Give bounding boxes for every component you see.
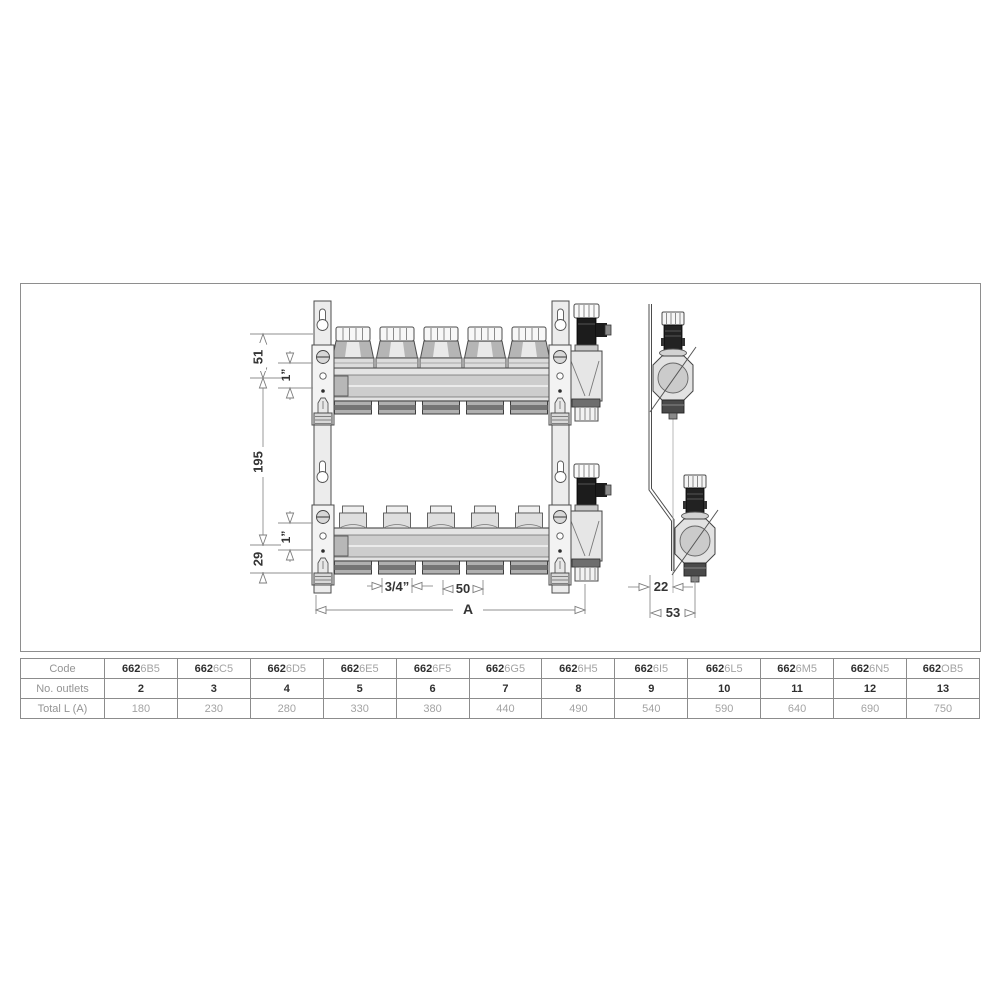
code-cell: 6626B5 [105,659,178,679]
total-cell: 640 [761,699,834,719]
outlets-cell: 13 [906,679,979,699]
code-cell: 662OB5 [906,659,979,679]
valve-knob [332,327,374,368]
outlets-cell: 10 [688,679,761,699]
dim-3-4inch-label: 3/4” [385,579,410,594]
dim-51-label: 51 [251,350,266,364]
valve-knob [508,327,550,368]
code-cell: 6626M5 [761,659,834,679]
total-cell: 590 [688,699,761,719]
bracket-plate [312,505,334,585]
outlets-cell: 8 [542,679,615,699]
side-valve-bottom [675,475,715,582]
manifold-drawing: 51 195 29 1” 1” 3/4” 50 [21,284,980,651]
total-cell: 750 [906,699,979,719]
table-row-total-length: Total L (A) 180 230 280 330 380 440 490 … [21,699,980,719]
row-label-code: Code [21,659,105,679]
end-valve-assembly-top [568,304,611,421]
total-cell: 490 [542,699,615,719]
bracket-plate [549,505,571,585]
side-view [649,304,718,593]
outlets-cell: 3 [177,679,250,699]
inlet-stub [472,506,499,528]
inlet-stub [516,506,543,528]
product-code-table: Code 6626B5 6626C5 6626D5 6626E5 6626F5 … [20,658,980,719]
inlet-stub [428,506,455,528]
total-cell: 440 [469,699,542,719]
outlets-cell: 12 [834,679,907,699]
dim-50-label: 50 [456,581,470,596]
dim-29-label: 29 [251,552,266,566]
outlet-nut [511,401,548,414]
outlet-nut [467,561,504,574]
technical-drawing-panel: 51 195 29 1” 1” 3/4” 50 [20,283,981,652]
end-valve-assembly-bottom [568,464,611,581]
bracket-plate [549,345,571,425]
outlets-cell: 11 [761,679,834,699]
row-label-outlets: No. outlets [21,679,105,699]
outlet-nut [423,401,460,414]
code-cell: 6626C5 [177,659,250,679]
total-cell: 690 [834,699,907,719]
code-cell: 6626D5 [250,659,323,679]
outlet-nut [335,561,372,574]
outlets-cell: 9 [615,679,688,699]
code-cell: 6626F5 [396,659,469,679]
front-view [312,301,611,593]
total-cell: 230 [177,699,250,719]
total-cell: 280 [250,699,323,719]
outlets-cell: 6 [396,679,469,699]
outlets-cell: 4 [250,679,323,699]
outlets-cell: 5 [323,679,396,699]
total-cell: 380 [396,699,469,719]
total-cell: 330 [323,699,396,719]
valve-knob [464,327,506,368]
bracket-plate [312,345,334,425]
valve-knob [376,327,418,368]
outlet-nut [379,401,416,414]
code-cell: 6626G5 [469,659,542,679]
outlet-nut [423,561,460,574]
outlet-nut [467,401,504,414]
outlet-nut [379,561,416,574]
row-label-total: Total L (A) [21,699,105,719]
code-cell: 6626H5 [542,659,615,679]
valve-knob [420,327,462,368]
code-cell: 6626E5 [323,659,396,679]
dim-1inch-top-label: 1” [279,369,293,382]
code-cell: 6626N5 [834,659,907,679]
code-cell: 6626L5 [688,659,761,679]
outlet-nut [335,401,372,414]
side-valve-top [653,312,693,419]
code-cell: 6626I5 [615,659,688,679]
dim-22-label: 22 [654,579,668,594]
outlets-cell: 7 [469,679,542,699]
outlet-nut [511,561,548,574]
total-cell: 540 [615,699,688,719]
table-row-outlets: No. outlets 2 3 4 5 6 7 8 9 10 11 12 13 [21,679,980,699]
dim-195-label: 195 [251,451,266,473]
outlets-cell: 2 [105,679,178,699]
dim-1inch-bottom-label: 1” [279,531,293,544]
inlet-stub [384,506,411,528]
inlet-stub [340,506,367,528]
dim-A-label: A [463,601,473,617]
total-cell: 180 [105,699,178,719]
table-row-code: Code 6626B5 6626C5 6626D5 6626E5 6626F5 … [21,659,980,679]
dim-53-label: 53 [666,605,680,620]
